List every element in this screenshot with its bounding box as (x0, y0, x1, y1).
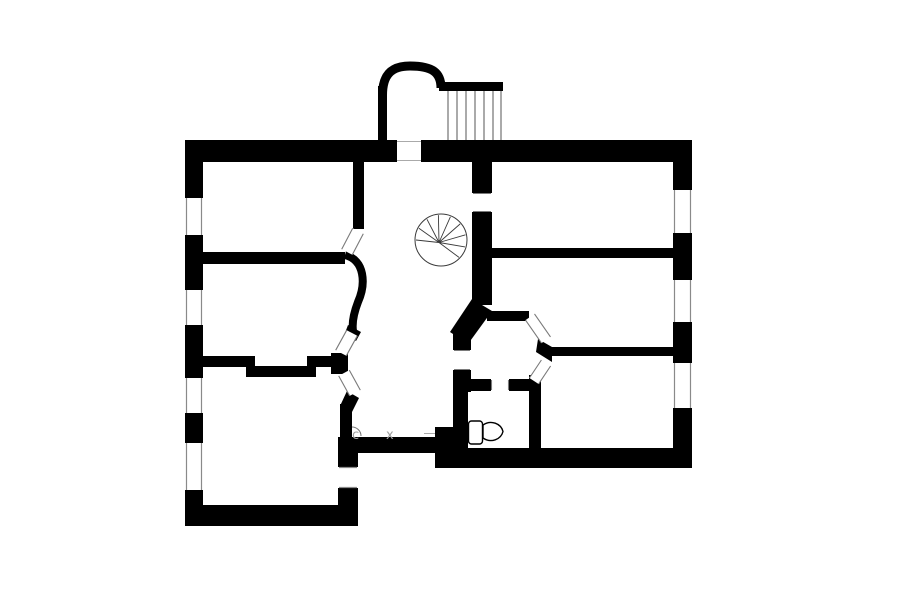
left-wall (185, 140, 203, 198)
divider-topleft-room (185, 252, 345, 264)
stair-treads-icon (448, 91, 501, 140)
floor-plan-drawing: c x (0, 0, 900, 604)
label-x: x (386, 428, 394, 443)
hall-left-wall (353, 160, 364, 229)
hex-top-wall (487, 311, 529, 321)
divider-right-rooms-upper (490, 248, 673, 258)
wc-top-wall (468, 379, 491, 391)
hall-right-wall (472, 162, 492, 193)
window-icon (675, 190, 691, 233)
porch-arch-wall (383, 66, 442, 95)
right-wall (673, 140, 692, 190)
top-wall-left (185, 140, 397, 162)
interior-walls-right (450, 162, 673, 450)
windows-right-wall (675, 190, 691, 408)
cased-opening (492, 380, 509, 390)
hex-left-wall (453, 330, 471, 350)
window-icon (187, 290, 202, 325)
divider-right-rooms-lower (549, 347, 673, 356)
cased-opening (454, 351, 470, 370)
window-icon (675, 280, 691, 322)
window-icon (339, 468, 357, 488)
wc-left-wall (453, 392, 468, 450)
floor-plan-canvas: c x (0, 0, 900, 604)
bottom-wall-left (185, 505, 358, 526)
top-wall-right (421, 140, 692, 162)
arched-porch (378, 66, 441, 142)
stair-top-rail (439, 82, 503, 91)
interior-walls-left (185, 160, 465, 526)
entry-door-opening (397, 142, 421, 161)
toilet-icon (469, 421, 504, 444)
doorway (342, 228, 364, 255)
window-icon (187, 443, 202, 490)
window-icon (187, 198, 202, 235)
window-icon (187, 378, 202, 413)
spiral-staircase-icon (415, 214, 467, 266)
exterior-staircase (439, 82, 503, 140)
outer-walls (185, 140, 692, 526)
window-icon (675, 363, 691, 408)
label-c: c (352, 428, 359, 443)
cased-opening (473, 194, 491, 212)
bottom-wall-right (435, 448, 692, 468)
notched-divider-wall (185, 356, 348, 377)
curved-wall (345, 255, 363, 331)
wc-right-wall (529, 375, 541, 450)
